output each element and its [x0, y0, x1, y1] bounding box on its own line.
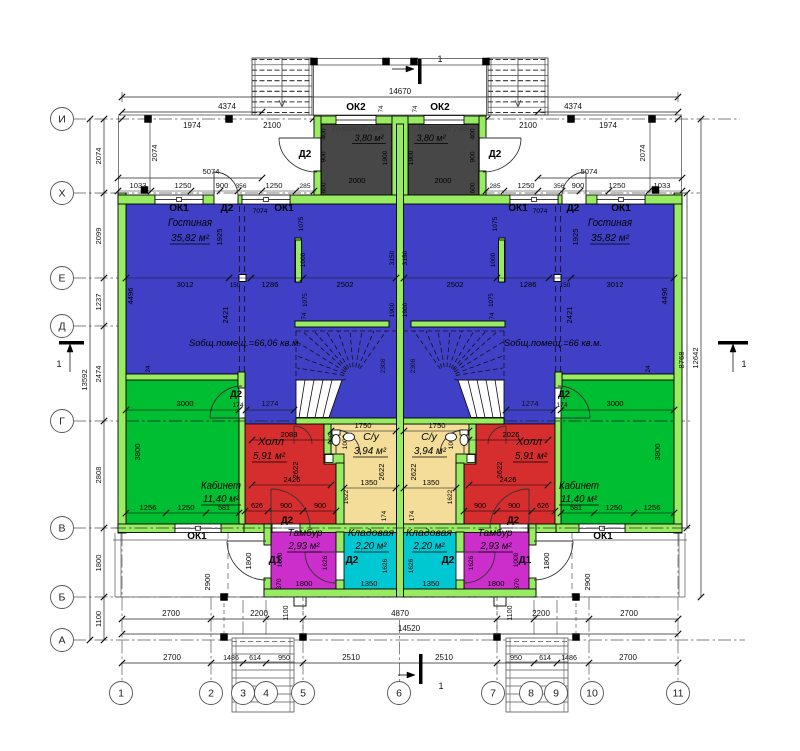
svg-text:2200: 2200	[250, 609, 268, 618]
svg-text:1286: 1286	[520, 280, 537, 289]
svg-text:3150: 3150	[389, 250, 396, 265]
svg-text:2308: 2308	[410, 358, 417, 373]
svg-text:1237: 1237	[94, 294, 103, 311]
svg-text:2,20 м²: 2,20 м²	[355, 541, 388, 552]
svg-text:2308: 2308	[380, 358, 387, 373]
svg-text:7: 7	[490, 688, 496, 700]
svg-text:1622: 1622	[343, 489, 350, 504]
svg-text:2900: 2900	[203, 574, 212, 591]
svg-text:Д2: Д2	[442, 555, 455, 566]
svg-text:Е: Е	[58, 273, 65, 285]
svg-text:7074: 7074	[253, 208, 268, 215]
svg-text:1900: 1900	[382, 150, 389, 165]
svg-text:5074: 5074	[203, 167, 220, 176]
svg-text:2510: 2510	[435, 653, 453, 662]
svg-text:А: А	[58, 635, 65, 647]
svg-text:2074: 2074	[150, 145, 159, 162]
svg-text:ОК1: ОК1	[508, 203, 528, 214]
svg-text:2,93 м²: 2,93 м²	[288, 541, 321, 552]
svg-text:1250: 1250	[518, 181, 535, 190]
svg-text:900: 900	[314, 502, 326, 510]
svg-text:Гостиная: Гостиная	[588, 217, 632, 229]
svg-text:3: 3	[240, 688, 246, 700]
svg-text:1274: 1274	[522, 399, 539, 408]
svg-text:900: 900	[508, 502, 520, 510]
svg-text:1100: 1100	[506, 605, 514, 620]
svg-text:150: 150	[230, 282, 241, 289]
svg-text:35,82 м²: 35,82 м²	[591, 233, 630, 244]
svg-text:2502: 2502	[447, 280, 464, 289]
svg-text:614: 614	[249, 654, 261, 662]
svg-text:1350: 1350	[423, 579, 440, 588]
svg-text:3000: 3000	[177, 399, 194, 408]
svg-text:1274: 1274	[262, 399, 279, 408]
svg-text:600: 600	[470, 182, 477, 193]
svg-text:900: 900	[474, 502, 486, 510]
svg-text:Д: Д	[58, 321, 65, 333]
svg-text:400: 400	[470, 128, 477, 139]
svg-text:Д2: Д2	[221, 203, 234, 214]
svg-text:1486: 1486	[561, 654, 577, 662]
svg-text:1622: 1622	[447, 489, 454, 504]
svg-text:14520: 14520	[398, 624, 421, 633]
svg-text:Sобщ.помещ.=66 кв.м.: Sобщ.помещ.=66 кв.м.	[504, 338, 602, 349]
svg-text:950: 950	[278, 654, 290, 662]
svg-text:626: 626	[251, 502, 263, 510]
svg-text:Тамбур: Тамбур	[478, 527, 513, 539]
svg-text:9: 9	[553, 688, 559, 700]
svg-text:11: 11	[673, 688, 684, 700]
svg-text:ОК1: ОК1	[274, 203, 294, 214]
svg-text:3800: 3800	[653, 444, 662, 461]
svg-text:5,91 м²: 5,91 м²	[253, 451, 286, 462]
svg-text:ОК1: ОК1	[169, 203, 189, 214]
svg-text:Кабинет: Кабинет	[559, 480, 599, 492]
svg-text:1925: 1925	[215, 229, 224, 246]
svg-text:2074: 2074	[638, 145, 647, 162]
svg-text:1: 1	[56, 359, 61, 369]
svg-text:13592: 13592	[80, 369, 89, 390]
svg-text:1075: 1075	[298, 216, 305, 231]
svg-text:581: 581	[218, 504, 230, 512]
svg-text:370: 370	[514, 578, 521, 589]
svg-text:4496: 4496	[660, 288, 669, 305]
svg-text:1350: 1350	[361, 579, 378, 588]
svg-text:Тамбур: Тамбур	[288, 527, 323, 539]
svg-text:1: 1	[118, 688, 124, 700]
svg-text:1000: 1000	[490, 252, 497, 267]
svg-text:2622: 2622	[409, 464, 418, 481]
svg-text:174: 174	[409, 510, 416, 521]
svg-text:900: 900	[321, 151, 328, 162]
svg-text:3800: 3800	[133, 444, 142, 461]
svg-text:8768: 8768	[677, 352, 686, 369]
svg-text:600: 600	[321, 182, 328, 193]
svg-text:ОК1: ОК1	[611, 203, 631, 214]
svg-text:Д1: Д1	[519, 555, 532, 566]
svg-text:3,94 м²: 3,94 м²	[354, 446, 387, 457]
svg-text:4374: 4374	[564, 102, 582, 111]
svg-text:1075: 1075	[492, 216, 499, 231]
svg-text:2: 2	[208, 688, 214, 700]
svg-text:24: 24	[145, 365, 152, 372]
svg-text:2700: 2700	[619, 653, 637, 662]
svg-text:2421: 2421	[565, 307, 574, 324]
svg-text:2510: 2510	[342, 653, 360, 662]
svg-text:1: 1	[741, 359, 746, 369]
svg-text:1626: 1626	[322, 555, 329, 570]
svg-text:14670: 14670	[389, 87, 412, 96]
svg-text:35,82 м²: 35,82 м²	[171, 233, 210, 244]
svg-text:581: 581	[570, 504, 582, 512]
svg-text:4496: 4496	[126, 288, 135, 305]
svg-text:1100: 1100	[94, 611, 103, 627]
svg-text:Sобщ.помещ.=66,06 кв.м.: Sобщ.помещ.=66,06 кв.м.	[189, 338, 301, 349]
svg-text:2099: 2099	[94, 228, 103, 245]
svg-text:74: 74	[378, 105, 385, 112]
svg-text:Тепловой узел: Тепловой узел	[417, 124, 470, 133]
svg-text:3,94 м²: 3,94 м²	[414, 446, 447, 457]
svg-text:1626: 1626	[382, 558, 389, 573]
svg-text:1256: 1256	[140, 503, 157, 512]
svg-text:1800: 1800	[94, 555, 103, 572]
svg-text:Г: Г	[59, 416, 65, 428]
svg-text:1250: 1250	[175, 181, 192, 190]
svg-text:1974: 1974	[599, 121, 617, 130]
svg-text:2000: 2000	[349, 176, 366, 185]
svg-text:Тепловой узел: Тепловой узел	[331, 124, 384, 133]
svg-text:5074: 5074	[581, 167, 598, 176]
svg-text:С/у: С/у	[421, 431, 438, 443]
svg-text:2808: 2808	[94, 467, 103, 484]
svg-text:4374: 4374	[218, 102, 236, 111]
svg-text:2622: 2622	[291, 462, 300, 479]
svg-text:1: 1	[437, 54, 442, 64]
svg-text:В: В	[58, 523, 65, 535]
svg-text:Д2: Д2	[558, 389, 570, 400]
svg-text:1800: 1800	[244, 553, 253, 570]
svg-text:1350: 1350	[423, 478, 440, 487]
svg-text:2088: 2088	[281, 430, 298, 439]
svg-text:174: 174	[556, 402, 567, 409]
svg-text:1486: 1486	[223, 654, 239, 662]
svg-text:2,93 м²: 2,93 м²	[480, 541, 513, 552]
svg-text:Б: Б	[59, 592, 66, 604]
svg-text:4870: 4870	[391, 609, 409, 618]
svg-text:900: 900	[470, 151, 477, 162]
svg-text:1750: 1750	[355, 421, 372, 430]
svg-text:900: 900	[280, 502, 292, 510]
svg-text:2474: 2474	[94, 366, 103, 383]
svg-text:1925: 1925	[571, 229, 580, 246]
svg-text:2622: 2622	[377, 464, 386, 481]
svg-text:150: 150	[560, 282, 571, 289]
svg-text:1900: 1900	[408, 150, 415, 165]
svg-text:1: 1	[438, 681, 443, 691]
svg-text:3012: 3012	[177, 280, 194, 289]
svg-text:Кладовая: Кладовая	[406, 527, 452, 539]
svg-text:2502: 2502	[337, 280, 354, 289]
svg-text:2421: 2421	[221, 307, 230, 324]
svg-text:2000: 2000	[435, 176, 452, 185]
svg-text:1350: 1350	[361, 478, 378, 487]
svg-text:1075: 1075	[488, 293, 495, 307]
svg-text:1800: 1800	[488, 579, 505, 588]
svg-text:2100: 2100	[519, 121, 537, 130]
svg-text:1800: 1800	[296, 579, 313, 588]
svg-text:1256: 1256	[644, 503, 661, 512]
svg-text:И: И	[58, 114, 66, 126]
svg-text:1900: 1900	[389, 302, 396, 317]
svg-text:24: 24	[645, 365, 652, 372]
svg-text:2700: 2700	[162, 609, 180, 618]
svg-text:3000: 3000	[607, 399, 624, 408]
svg-text:2200: 2200	[532, 609, 550, 618]
svg-text:1000: 1000	[300, 252, 307, 267]
svg-text:74: 74	[489, 312, 496, 319]
svg-text:12642: 12642	[691, 347, 700, 368]
svg-text:Х: Х	[58, 188, 65, 200]
svg-text:Кабинет: Кабинет	[201, 480, 241, 492]
svg-text:1626: 1626	[468, 555, 475, 570]
svg-text:1075: 1075	[302, 293, 309, 307]
svg-text:6: 6	[396, 688, 402, 700]
svg-text:4: 4	[263, 688, 269, 700]
svg-text:2074: 2074	[94, 148, 103, 165]
svg-text:614: 614	[539, 654, 551, 662]
svg-text:400: 400	[321, 128, 328, 139]
svg-text:5: 5	[300, 688, 306, 700]
svg-text:1800: 1800	[542, 553, 551, 570]
svg-text:2900: 2900	[583, 574, 592, 591]
svg-text:ОК2: ОК2	[346, 102, 366, 113]
svg-text:Д2: Д2	[507, 515, 519, 526]
svg-text:Д1: Д1	[269, 555, 282, 566]
svg-text:74: 74	[301, 312, 308, 319]
svg-text:74: 74	[412, 105, 419, 112]
svg-text:Кладовая: Кладовая	[348, 527, 394, 539]
svg-text:Д2: Д2	[230, 389, 242, 400]
svg-text:Д2: Д2	[346, 555, 359, 566]
svg-text:3150: 3150	[402, 250, 409, 265]
svg-text:2700: 2700	[163, 653, 181, 662]
svg-text:285: 285	[489, 183, 500, 190]
svg-text:1250: 1250	[606, 503, 623, 512]
svg-text:2700: 2700	[620, 609, 638, 618]
svg-text:1250: 1250	[266, 181, 283, 190]
svg-text:2,20 м²: 2,20 м²	[413, 541, 446, 552]
svg-text:950: 950	[510, 654, 522, 662]
svg-text:1250: 1250	[178, 503, 195, 512]
svg-text:1900: 1900	[402, 302, 409, 317]
svg-text:С/у: С/у	[363, 431, 380, 443]
svg-text:2100: 2100	[263, 121, 281, 130]
svg-text:3,80 м²: 3,80 м²	[355, 133, 385, 143]
svg-text:174: 174	[232, 402, 243, 409]
svg-text:370: 370	[276, 578, 283, 589]
svg-text:Д2: Д2	[299, 149, 312, 160]
svg-text:8: 8	[528, 688, 534, 700]
svg-text:2026: 2026	[503, 430, 520, 439]
svg-text:5,91 м²: 5,91 м²	[515, 451, 548, 462]
svg-text:285: 285	[299, 183, 310, 190]
svg-text:626: 626	[537, 502, 549, 510]
svg-text:2622: 2622	[495, 462, 504, 479]
svg-text:3012: 3012	[607, 280, 624, 289]
svg-text:1286: 1286	[262, 280, 279, 289]
svg-text:Гостиная: Гостиная	[168, 217, 212, 229]
svg-text:7074: 7074	[533, 208, 548, 215]
svg-text:3,80 м²: 3,80 м²	[417, 133, 447, 143]
svg-text:1974: 1974	[183, 121, 201, 130]
svg-text:Д2: Д2	[281, 515, 293, 526]
svg-text:Д2: Д2	[489, 149, 502, 160]
svg-text:1626: 1626	[408, 558, 415, 573]
svg-text:10: 10	[586, 688, 598, 700]
svg-text:174: 174	[381, 510, 388, 521]
svg-text:Д2: Д2	[567, 203, 580, 214]
svg-text:1750: 1750	[429, 421, 446, 430]
svg-text:ОК2: ОК2	[430, 102, 450, 113]
svg-text:1100: 1100	[282, 605, 290, 620]
